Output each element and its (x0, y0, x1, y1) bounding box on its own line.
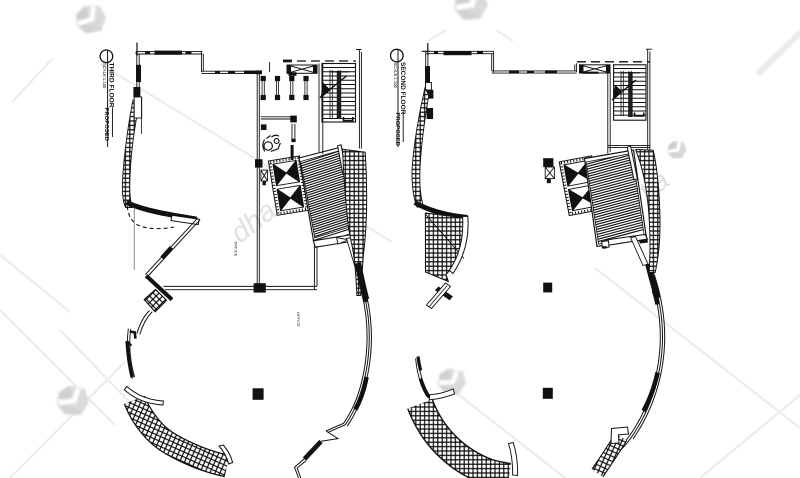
svg-text:SCALE 1:100: SCALE 1:100 (393, 63, 398, 89)
svg-text:OFFICE: OFFICE (296, 312, 300, 327)
svg-text:PROPOSED: PROPOSED (394, 113, 400, 146)
svg-text:SCALE 1:100: SCALE 1:100 (102, 63, 107, 89)
svg-text:THIRD FLOOR: THIRD FLOOR (108, 63, 115, 108)
svg-text:PROPOSED: PROPOSED (103, 108, 109, 141)
svg-text:OFFICE: OFFICE (234, 242, 238, 257)
svg-text:SECOND FLOOR: SECOND FLOOR (399, 62, 406, 115)
